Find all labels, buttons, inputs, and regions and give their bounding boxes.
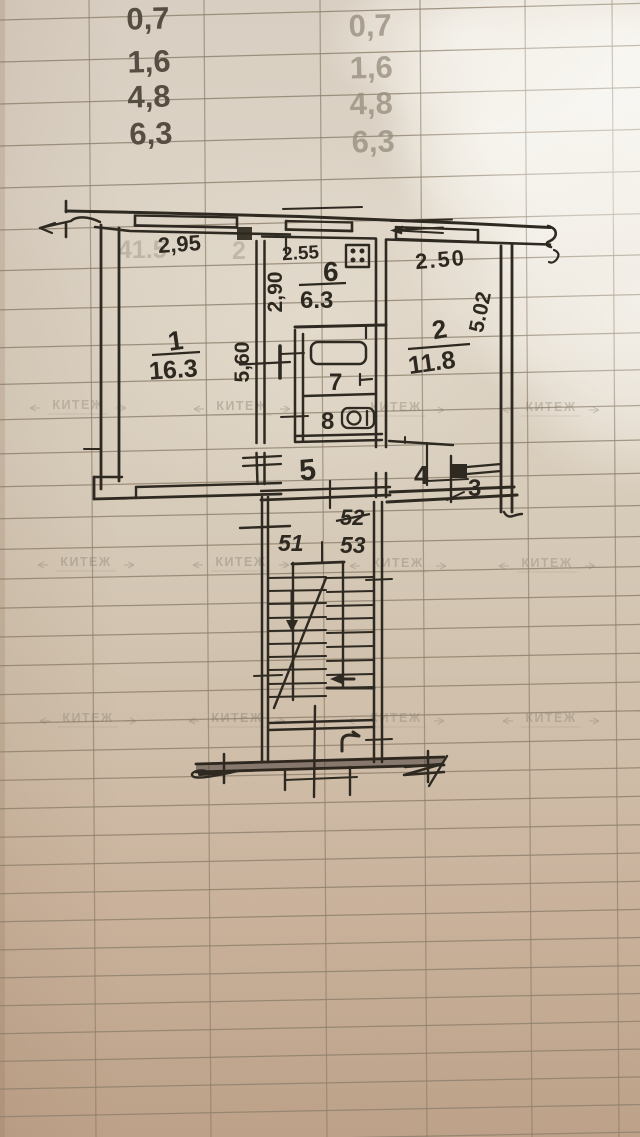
svg-text:6,3: 6,3 [129, 115, 173, 151]
svg-text:51: 51 [278, 530, 304, 556]
svg-text:3: 3 [468, 475, 481, 502]
svg-text:1,6: 1,6 [127, 43, 171, 79]
svg-text:КИТЕЖ: КИТЕЖ [370, 400, 421, 414]
svg-text:7: 7 [329, 369, 342, 396]
svg-text:2.50: 2.50 [414, 245, 467, 274]
svg-text:1,6: 1,6 [349, 49, 393, 85]
svg-text:КИТЕЖ: КИТЕЖ [52, 398, 103, 412]
svg-text:КИТЕЖ: КИТЕЖ [60, 555, 111, 569]
svg-text:4: 4 [414, 460, 429, 490]
svg-text:2: 2 [232, 237, 246, 265]
svg-text:5,60: 5,60 [231, 342, 254, 383]
svg-text:КИТЕЖ: КИТЕЖ [370, 711, 421, 725]
svg-text:2,95: 2,95 [157, 230, 201, 258]
svg-text:2.55: 2.55 [282, 242, 320, 265]
svg-text:КИТЕЖ: КИТЕЖ [62, 711, 113, 725]
svg-text:16.3: 16.3 [148, 354, 199, 385]
svg-text:КИТЕЖ: КИТЕЖ [525, 400, 576, 414]
svg-text:8: 8 [321, 408, 334, 435]
svg-text:КИТЕЖ: КИТЕЖ [215, 555, 266, 569]
svg-text:4,8: 4,8 [127, 78, 171, 114]
svg-text:КИТЕЖ: КИТЕЖ [211, 711, 262, 725]
svg-text:0,7: 0,7 [126, 0, 170, 36]
svg-text:5: 5 [298, 453, 318, 487]
svg-text:6.3: 6.3 [300, 287, 333, 314]
svg-text:4,8: 4,8 [349, 85, 393, 121]
svg-text:КИТЕЖ: КИТЕЖ [372, 556, 423, 570]
svg-text:53: 53 [340, 532, 366, 558]
svg-text:0,7: 0,7 [348, 7, 392, 43]
svg-text:6,3: 6,3 [351, 123, 395, 159]
svg-text:КИТЕЖ: КИТЕЖ [521, 556, 572, 570]
svg-text:КИТЕЖ: КИТЕЖ [216, 399, 267, 413]
svg-text:2,90: 2,90 [264, 272, 287, 313]
svg-text:КИТЕЖ: КИТЕЖ [525, 711, 576, 725]
